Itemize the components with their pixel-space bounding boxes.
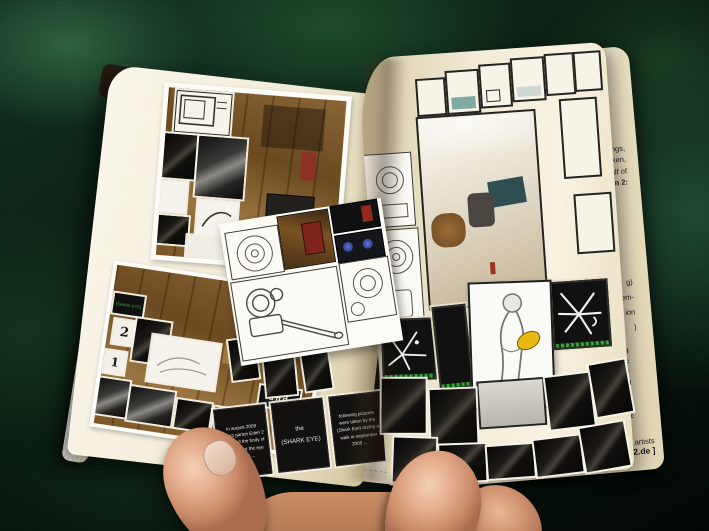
machine-drawing-panel bbox=[230, 266, 349, 362]
photo-tile bbox=[545, 373, 595, 430]
insert-card bbox=[219, 198, 404, 366]
photo-tile bbox=[162, 133, 197, 179]
photo-strip bbox=[517, 85, 542, 97]
gauge-drawing bbox=[234, 233, 275, 274]
red-detail bbox=[361, 205, 373, 222]
top-panel-photo bbox=[510, 56, 547, 102]
photo-tile bbox=[430, 389, 478, 445]
caption-panel-pictures: following pictures were taken by the (Sh… bbox=[328, 391, 388, 466]
photo-tile bbox=[534, 435, 584, 476]
green-caption-strip bbox=[442, 381, 472, 388]
photo-tile bbox=[487, 444, 535, 479]
gray-photo-tile bbox=[476, 377, 547, 430]
spark-drawing bbox=[552, 280, 610, 348]
speaker-dot bbox=[342, 241, 353, 252]
cabinet-photo-tile bbox=[276, 208, 336, 269]
top-panel bbox=[572, 50, 603, 92]
crt-monitor-drawing bbox=[175, 91, 232, 135]
top-panel bbox=[415, 77, 448, 117]
shelf-shadow bbox=[261, 105, 326, 152]
inner-outline bbox=[486, 89, 501, 102]
photo-tile bbox=[589, 360, 633, 417]
mini-green-label: (SHARK EYE) bbox=[116, 300, 142, 309]
top-panel bbox=[543, 52, 576, 96]
number-tile-1: 1 bbox=[103, 350, 126, 375]
photo-tile bbox=[157, 215, 189, 245]
photo-tile bbox=[301, 350, 332, 391]
gear-drawing bbox=[351, 266, 385, 300]
sketch-lines bbox=[147, 335, 221, 391]
gauge-panel bbox=[224, 225, 285, 281]
right-page bbox=[357, 42, 634, 486]
red-object bbox=[300, 152, 316, 181]
gauge-drawing bbox=[375, 165, 405, 195]
fragment: c bbox=[630, 410, 643, 422]
tall-panel bbox=[559, 97, 602, 179]
spark-panel bbox=[431, 304, 474, 391]
photo-tile bbox=[580, 421, 631, 472]
gear-drawing bbox=[350, 301, 366, 317]
photo-tile bbox=[127, 386, 176, 426]
photo-tile bbox=[195, 136, 248, 200]
basket bbox=[430, 212, 466, 248]
mini-green-label-tile: (SHARK EYE) bbox=[112, 293, 145, 317]
speaker-dot bbox=[362, 238, 373, 249]
photo-open-book: je ei he as als ch te er ur in e rawings… bbox=[0, 0, 709, 531]
top-panel-photo bbox=[444, 69, 481, 115]
machine-drawing bbox=[231, 267, 348, 361]
caption-panel-title: the (SHARK EYE) bbox=[271, 397, 331, 472]
photo-tile bbox=[382, 379, 426, 433]
tall-panel bbox=[573, 192, 615, 255]
crt-drawing-tile bbox=[174, 90, 233, 136]
dark-machine bbox=[467, 192, 495, 228]
photo-tile bbox=[95, 377, 130, 417]
gear-drawing-panel bbox=[338, 256, 397, 323]
top-panel bbox=[478, 63, 513, 109]
photo-tile bbox=[159, 181, 187, 213]
photo-strip bbox=[451, 96, 476, 110]
spark-panel bbox=[549, 278, 612, 350]
sketch-tile bbox=[147, 335, 221, 391]
red-box bbox=[301, 221, 326, 256]
white-counter bbox=[422, 113, 532, 154]
red-detail bbox=[490, 262, 496, 274]
